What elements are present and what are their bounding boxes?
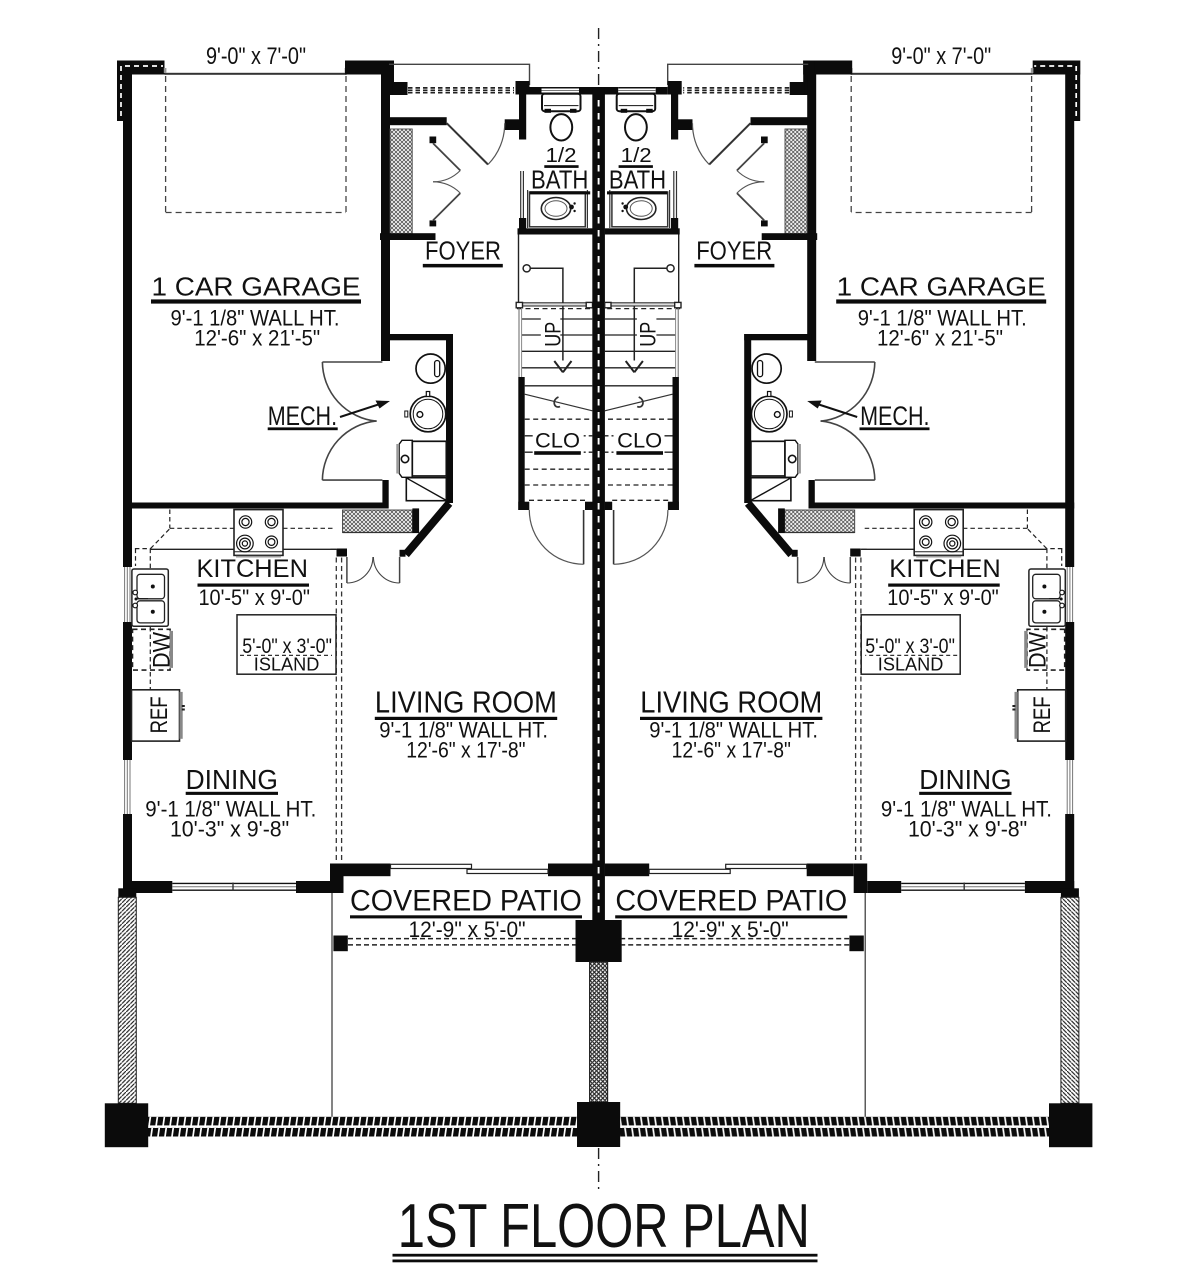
svg-text:MECH.: MECH. <box>268 401 337 431</box>
svg-text:ISLAND: ISLAND <box>878 654 944 675</box>
svg-text:LIVING ROOM: LIVING ROOM <box>375 685 557 720</box>
svg-text:DW: DW <box>1025 632 1052 668</box>
svg-text:9'-0" x 7'-0": 9'-0" x 7'-0" <box>891 43 991 70</box>
svg-text:CLO: CLO <box>535 429 580 452</box>
svg-text:1 CAR GARAGE: 1 CAR GARAGE <box>837 271 1046 301</box>
svg-text:10'-3" x 9'-8": 10'-3" x 9'-8" <box>170 817 289 842</box>
svg-text:FOYER: FOYER <box>696 235 772 265</box>
svg-text:12'-6" x 21'-5": 12'-6" x 21'-5" <box>877 326 1003 351</box>
svg-text:REF: REF <box>1029 696 1056 733</box>
svg-text:12'-6" x 17'-8": 12'-6" x 17'-8" <box>672 738 791 763</box>
svg-text:1ST FLOOR PLAN: 1ST FLOOR PLAN <box>398 1192 810 1261</box>
svg-text:UP: UP <box>540 322 565 347</box>
svg-text:12'-9" x 5'-0": 12'-9" x 5'-0" <box>408 917 525 942</box>
svg-text:MECH.: MECH. <box>860 401 929 431</box>
svg-text:UP: UP <box>635 322 660 347</box>
svg-text:DW: DW <box>148 632 175 668</box>
svg-text:CLO: CLO <box>617 429 662 452</box>
svg-text:1 CAR GARAGE: 1 CAR GARAGE <box>152 271 361 301</box>
svg-text:ISLAND: ISLAND <box>254 654 320 675</box>
svg-text:BATH: BATH <box>531 164 588 194</box>
svg-text:COVERED PATIO: COVERED PATIO <box>350 884 582 917</box>
svg-text:12'-9" x 5'-0": 12'-9" x 5'-0" <box>672 917 789 942</box>
svg-text:9'-0" x 7'-0": 9'-0" x 7'-0" <box>206 43 306 70</box>
svg-text:KITCHEN: KITCHEN <box>197 555 308 583</box>
svg-text:REF: REF <box>146 696 173 733</box>
svg-text:FOYER: FOYER <box>425 235 501 265</box>
svg-text:KITCHEN: KITCHEN <box>889 555 1000 583</box>
svg-text:10'-5" x 9'-0": 10'-5" x 9'-0" <box>887 585 999 610</box>
svg-text:10'-3" x 9'-8": 10'-3" x 9'-8" <box>908 817 1027 842</box>
svg-text:12'-6" x 21'-5": 12'-6" x 21'-5" <box>194 326 320 351</box>
svg-text:COVERED PATIO: COVERED PATIO <box>615 884 847 917</box>
svg-text:BATH: BATH <box>609 164 666 194</box>
svg-text:10'-5" x 9'-0": 10'-5" x 9'-0" <box>198 585 310 610</box>
svg-text:12'-6" x 17'-8": 12'-6" x 17'-8" <box>406 738 525 763</box>
svg-text:DINING: DINING <box>919 764 1011 795</box>
svg-text:DINING: DINING <box>186 764 278 795</box>
svg-text:LIVING ROOM: LIVING ROOM <box>640 685 822 720</box>
